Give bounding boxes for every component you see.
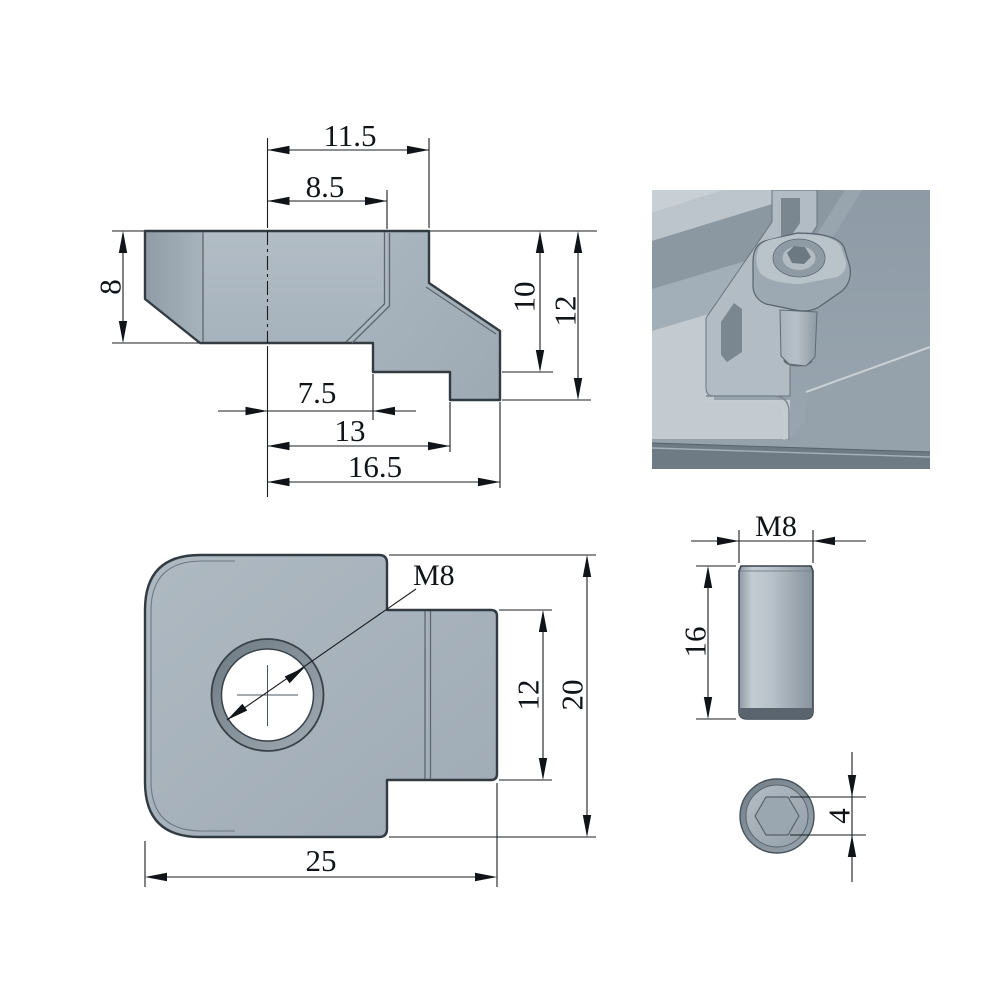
stud-cylinder bbox=[739, 566, 813, 719]
plan-view: M8 12 20 25 bbox=[145, 555, 596, 887]
dim-label-right-depth: 10 bbox=[507, 282, 542, 313]
dim-label-bottom-mid: 13 bbox=[335, 413, 366, 448]
thread-callout-label: M8 bbox=[413, 559, 455, 592]
stud-bottom-shadow bbox=[739, 708, 813, 719]
drawing-sheet: 11.5 8.5 8 7.5 13 16.5 10 12 bbox=[0, 0, 1000, 1000]
stud-side-view: M8 16 bbox=[678, 510, 867, 719]
dim-label-total-height: 20 bbox=[555, 680, 590, 711]
dim-label-top-width: 11.5 bbox=[323, 118, 376, 153]
dim-label-stud-length: 16 bbox=[678, 627, 713, 658]
side-profile-view: 11.5 8.5 8 7.5 13 16.5 10 12 bbox=[93, 118, 598, 497]
dim-label-upper-width: 8.5 bbox=[306, 169, 345, 204]
dim-label-left-height: 8 bbox=[93, 279, 128, 295]
dim-label-socket-width: 4 bbox=[822, 808, 857, 824]
profile-left-chamfer-face bbox=[145, 231, 203, 343]
dim-label-right-total: 12 bbox=[548, 296, 583, 327]
dim-label-total-width: 25 bbox=[306, 843, 337, 878]
stud-boss bbox=[780, 310, 817, 366]
dim-label-bottom-total: 16.5 bbox=[348, 449, 402, 484]
profile-main-face bbox=[203, 231, 387, 343]
stud-thread-label: M8 bbox=[755, 510, 797, 543]
assembly-render bbox=[652, 190, 930, 469]
dim-label-tab-height: 12 bbox=[511, 680, 546, 711]
dim-label-bottom-step: 7.5 bbox=[298, 375, 337, 410]
stud-end-view: 4 bbox=[740, 752, 866, 882]
cad-drawing-canvas: 11.5 8.5 8 7.5 13 16.5 10 12 bbox=[0, 0, 1000, 1000]
